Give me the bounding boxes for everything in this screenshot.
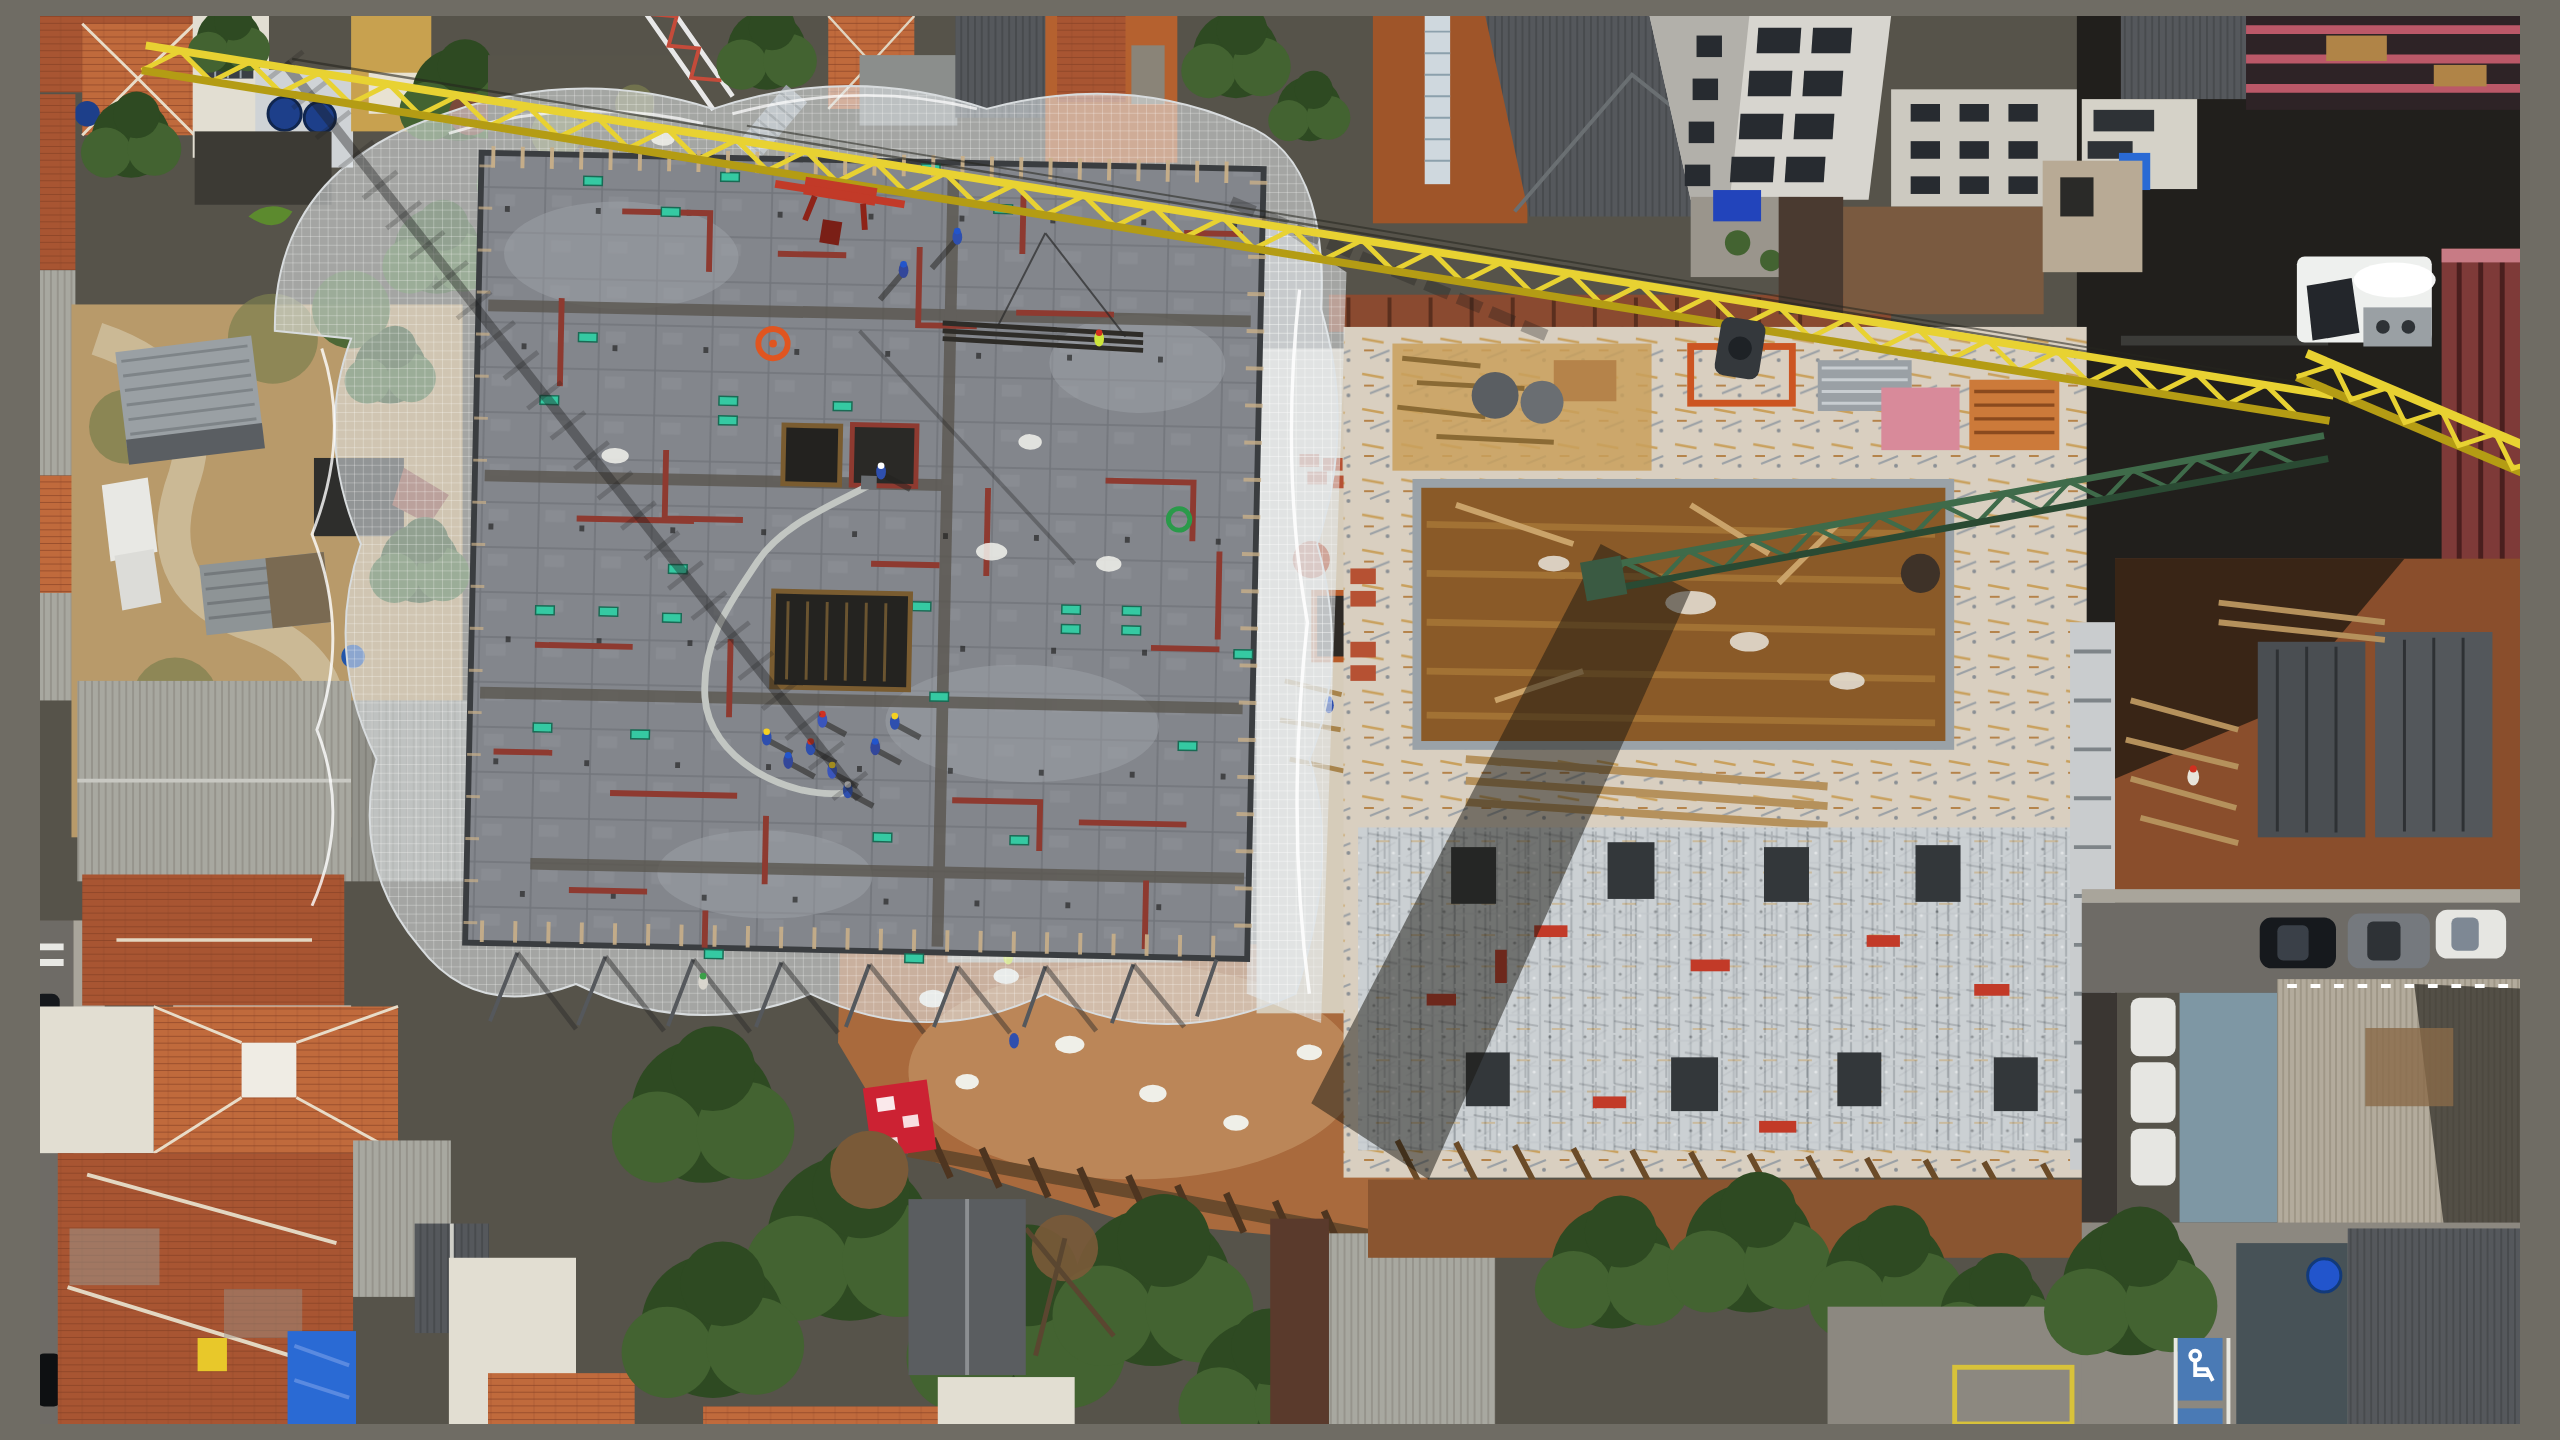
white-corrugated-roof: [1329, 1233, 1495, 1424]
parked-vans: [2131, 998, 2176, 1186]
pink-mesh-wrapped-building: [2246, 16, 2520, 110]
white-house: [938, 1377, 1075, 1424]
tile-roof: [488, 1373, 635, 1424]
slab-deck: [465, 128, 1264, 969]
white-panel: [102, 478, 158, 562]
winch-drum: [2376, 320, 2390, 334]
hose-nozzle: [861, 476, 877, 490]
window-grid: [1911, 104, 2038, 194]
jib-end-platform: [1580, 556, 1627, 602]
crane-slewing-unit: [2297, 257, 2436, 347]
white-panel: [114, 549, 161, 611]
rust-patch: [2365, 1028, 2453, 1106]
grey-roof-strip: [40, 593, 75, 701]
dark-warehouse: [2348, 1228, 2520, 1424]
highrise-tower: [1650, 16, 1892, 200]
brown-yard: [1843, 207, 2043, 315]
pink-panel: [1881, 388, 1959, 451]
mesh-rolls: [1521, 381, 1564, 424]
weathered-patch: [70, 1228, 160, 1285]
grey-roofs: [2121, 16, 2248, 99]
inner-courtyard: [242, 1043, 297, 1098]
hoist-carriage: [1713, 316, 1767, 381]
yellow-panel: [198, 1338, 227, 1371]
rust-roof: [1270, 1219, 1329, 1424]
container-shed: [199, 552, 331, 635]
bush: [1760, 250, 1782, 272]
courtyard-roof: [154, 1006, 398, 1153]
sunlight-glare: [2354, 262, 2436, 297]
formwork-panel-wall: [2258, 642, 2366, 838]
warehouse-roof-large: [2277, 979, 2520, 1223]
opening: [2060, 177, 2093, 216]
hook-block: [819, 219, 842, 245]
debris: [1901, 554, 1940, 593]
machinery-deck: [2363, 307, 2431, 346]
container-shed: [115, 336, 265, 465]
scene-canvas: [40, 16, 2520, 1424]
pink-edge: [2442, 249, 2520, 263]
skylight-strip: [1425, 16, 1450, 184]
sidewalk: [2082, 889, 2520, 903]
water-tank: [268, 97, 301, 130]
tile-roof: [1057, 16, 1125, 102]
tile-roof-strip: [40, 94, 75, 270]
dark-fence: [2082, 993, 2117, 1223]
accessible-parking-stalls: [2176, 1338, 2229, 1424]
blue-grey-building: [2180, 993, 2278, 1223]
dry-branch-patch: [830, 1131, 908, 1209]
aerial-photo: Top-down aerial drone photo of an urban …: [40, 16, 2520, 1424]
dark-sign: [2094, 110, 2155, 132]
netted-slab-building: [275, 86, 1347, 1033]
grey-roof-strip: [40, 270, 75, 475]
weathered-patch: [224, 1289, 302, 1338]
shadow-yard: [195, 131, 332, 204]
mesh-rolls: [1472, 372, 1519, 419]
far-right-street-and-blocks: [2044, 559, 2520, 1424]
blue-container: [1713, 190, 1761, 221]
dark-brick-wall: [1779, 197, 1844, 314]
tile-roof-strip: [40, 476, 75, 593]
cab-windshield: [2307, 278, 2360, 341]
winch-drum: [2402, 320, 2416, 334]
white-walls: [40, 1006, 154, 1153]
bush: [1725, 230, 1750, 255]
blue-dome-tank: [2308, 1259, 2341, 1292]
far-right-shadow-zone: [2043, 16, 2520, 622]
large-tile-roof: [58, 1153, 356, 1424]
